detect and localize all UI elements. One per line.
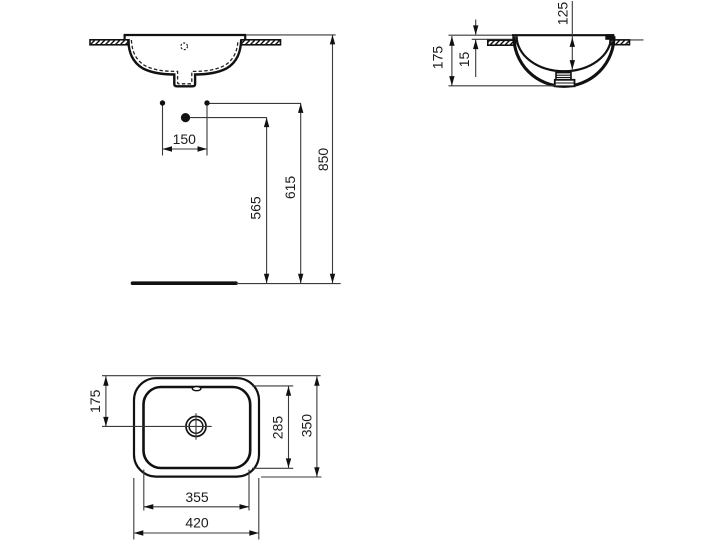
- svg-text:850: 850: [315, 148, 331, 172]
- svg-text:175: 175: [87, 389, 103, 413]
- svg-text:565: 565: [247, 196, 263, 220]
- svg-text:150: 150: [173, 131, 197, 147]
- svg-text:355: 355: [185, 489, 209, 505]
- svg-text:15: 15: [456, 52, 472, 68]
- svg-text:350: 350: [299, 414, 315, 438]
- svg-text:615: 615: [282, 176, 298, 200]
- svg-text:285: 285: [269, 416, 285, 440]
- svg-text:125: 125: [555, 2, 571, 26]
- svg-text:175: 175: [430, 46, 446, 70]
- svg-text:420: 420: [185, 514, 209, 530]
